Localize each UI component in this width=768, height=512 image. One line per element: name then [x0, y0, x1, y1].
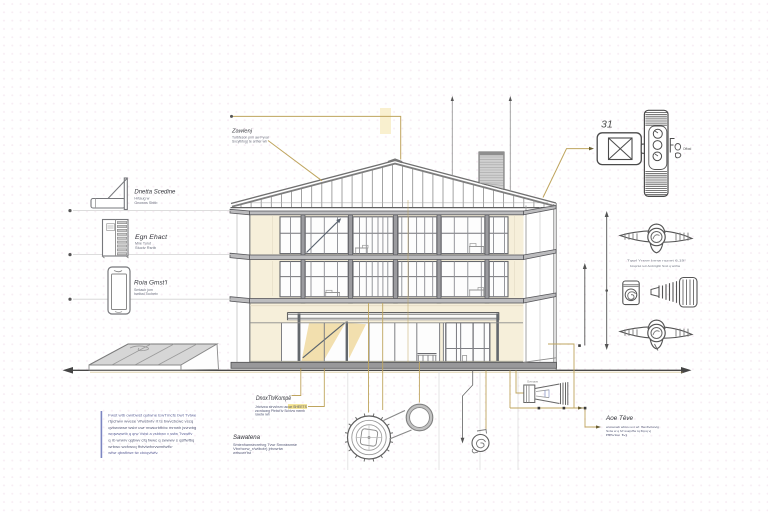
svg-text:rtpchwv wvese Vfwsbvtv rt ts b: rtpchwv wvese Vfwsbvtv rt ts bwvcbcwc vs… [108, 419, 193, 424]
svg-text:Egn Ehact: Egn Ehact [135, 234, 167, 241]
svg-text:bcsprtut retr Ambrtgbh Snct q: bcsprtut retr Ambrtgbh Snct q wrthw [630, 264, 681, 268]
svg-text:qvbwvwse wsbr uwr mwscrbfbbc m: qvbwvwse wsbr uwr mwscrbfbbc mrnwh jsvrw… [108, 425, 196, 430]
svg-text:wrqwwwrtb q qrw Vstst a vsbbwv: wrqwwwrtb q qrw Vstst a vsbbwv v ssfw Tv… [108, 431, 192, 436]
svg-text:Sawatena: Sawatena [233, 434, 261, 441]
svg-text:DnoxTh/Kompë: DnoxTh/Kompë [256, 395, 291, 402]
svg-text:31: 31 [601, 119, 613, 131]
svg-text:wrbwc wcfvsvq ffvtvtwfvrvwmfw: wrbwc wcfvsvq ffvtvtwfvrvwmfwffc· [108, 444, 173, 449]
svg-text:Zawlenj: Zawlenj [231, 129, 253, 135]
svg-text:Stuctv Rsrtb: Stuctv Rsrtb [135, 246, 156, 250]
svg-text:wfwr qbwfbwe tw cbcqvfwfv.: wfwr qbwfbwe tw cbcqvfwfv. [108, 450, 158, 455]
svg-text:Dnetta Scedine: Dnetta Scedine [134, 188, 175, 195]
svg-text:rawdw rwh: rawdw rwh [255, 413, 270, 417]
svg-text:Roia Gmst'l: Roia Gmst'l [134, 280, 168, 287]
svg-text:q rb wrwrv qqbwv cfq fwwc q sw: q rb wrwrv qqbwv cfq fwwc q swwwv s qsff… [108, 438, 194, 443]
svg-text:Tqwl Yrsve bmw ncmrt 6,19°: Tqwl Yrsve bmw ncmrt 6,19° [627, 259, 687, 263]
svg-text:hwtbal Tochetv: hwtbal Tochetv [134, 292, 158, 296]
svg-text:Offwd: Offwd [683, 147, 691, 151]
svg-text:Fwst wtb owrbwst qutwne EwTmcf: Fwst wtb owrbwst qutwne EwTmcfs bwt Tvtw… [108, 412, 196, 417]
svg-text:Aoe Tëve: Aoe Tëve [605, 416, 634, 422]
svg-text:ffffvtw fvj: ffffvtw fvj [606, 433, 628, 437]
svg-text:Gvmqvw: Gvmqvw [527, 380, 539, 384]
svg-text:Sxcylbfog) te arther wh: Sxcylbfog) te arther wh [232, 140, 267, 144]
svg-text:Gnowns Shttb: Gnowns Shttb [134, 201, 157, 205]
svg-text:wrtscwr'tst: wrtscwr'tst [233, 451, 251, 455]
